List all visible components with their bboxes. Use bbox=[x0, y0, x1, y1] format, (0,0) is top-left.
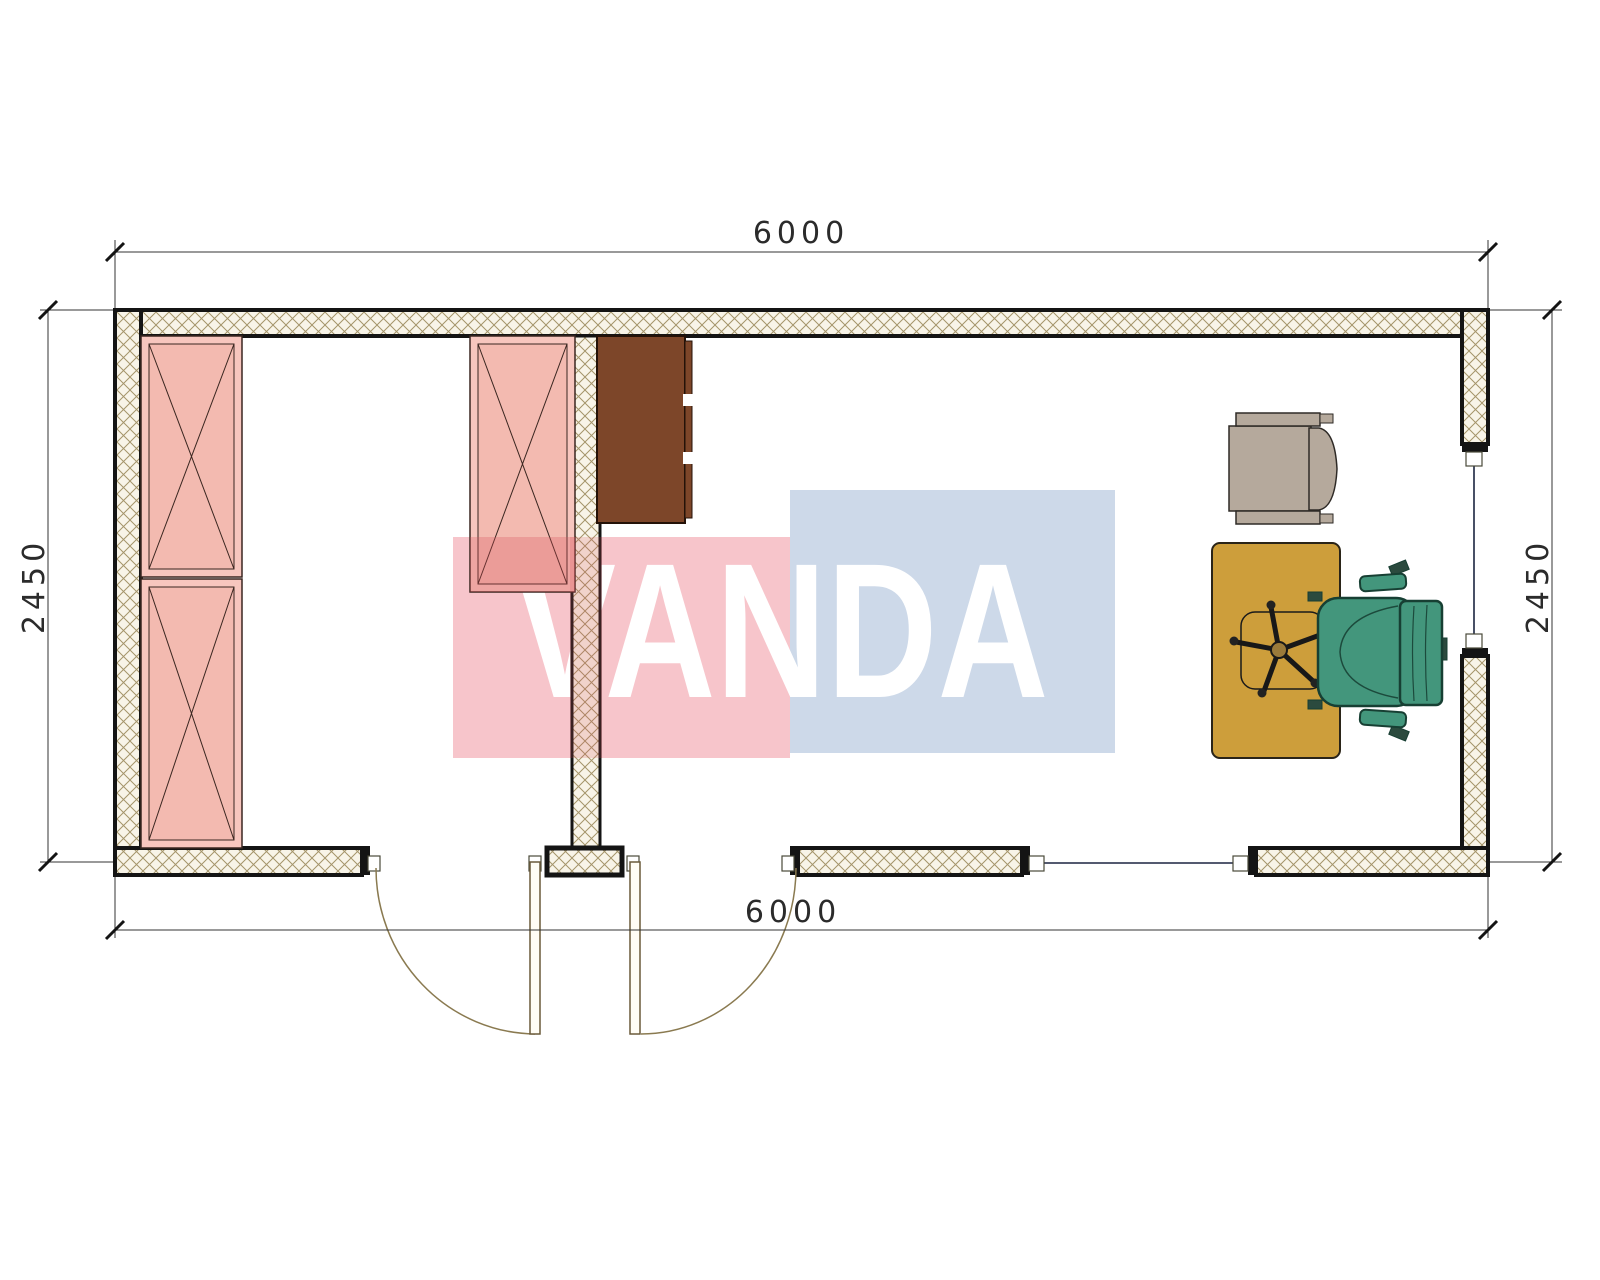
guest-chair-armrest-top bbox=[1236, 413, 1320, 426]
window-right-frame-top bbox=[1466, 452, 1482, 466]
window-right-frame-bottom bbox=[1466, 634, 1482, 648]
office-chair-foot bbox=[1308, 700, 1322, 709]
bottom-wall-middle bbox=[798, 848, 1022, 875]
dim-label-bottom: 6000 bbox=[745, 895, 841, 930]
guest-chair-tab bbox=[1320, 514, 1333, 523]
top-wall bbox=[115, 310, 1488, 336]
cabinet-door-gap bbox=[683, 394, 694, 406]
wardrobe-bottom-left bbox=[141, 579, 242, 848]
right-wall-upper bbox=[1462, 310, 1488, 444]
guest-chair-tab bbox=[1320, 414, 1333, 423]
bottom-wall-left bbox=[115, 848, 362, 875]
floor-plan-canvas: VANDA bbox=[0, 0, 1600, 1280]
storage-cabinet bbox=[597, 336, 694, 523]
cabinet-door-gap bbox=[683, 452, 694, 464]
window-bottom-frame-right bbox=[1233, 856, 1248, 871]
guest-chair bbox=[1229, 413, 1337, 524]
dim-label-top: 6000 bbox=[753, 216, 849, 251]
office-chair-armrest-bottom bbox=[1359, 709, 1406, 727]
guest-chair-seat bbox=[1229, 426, 1311, 511]
guest-chair-armrest-bottom bbox=[1236, 511, 1320, 524]
office-chair-foot bbox=[1308, 592, 1322, 601]
left-wall bbox=[115, 310, 141, 875]
floor-plan-drawing: VANDA bbox=[0, 0, 1600, 1280]
dim-label-left: 2450 bbox=[17, 538, 52, 634]
door-right-jamb bbox=[782, 856, 794, 871]
bottom-wall-right bbox=[1256, 848, 1488, 875]
dim-label-right: 2450 bbox=[1521, 538, 1556, 634]
door-left-jamb bbox=[368, 856, 380, 871]
watermark-tint-partition bbox=[570, 537, 602, 758]
office-chair-armrest-top bbox=[1360, 573, 1407, 591]
door-right-leaf bbox=[630, 862, 640, 1034]
cabinet-door-front bbox=[685, 341, 692, 518]
wardrobe-top-left bbox=[141, 336, 242, 577]
window-bottom-frame-left bbox=[1029, 856, 1044, 871]
door-partition-stub bbox=[547, 848, 622, 875]
watermark-tint-wardrobe bbox=[470, 537, 575, 592]
right-wall-lower bbox=[1462, 656, 1488, 875]
door-left-leaf bbox=[530, 862, 540, 1034]
chair-base-hub bbox=[1271, 642, 1287, 658]
office-chair-backrest bbox=[1400, 601, 1442, 705]
